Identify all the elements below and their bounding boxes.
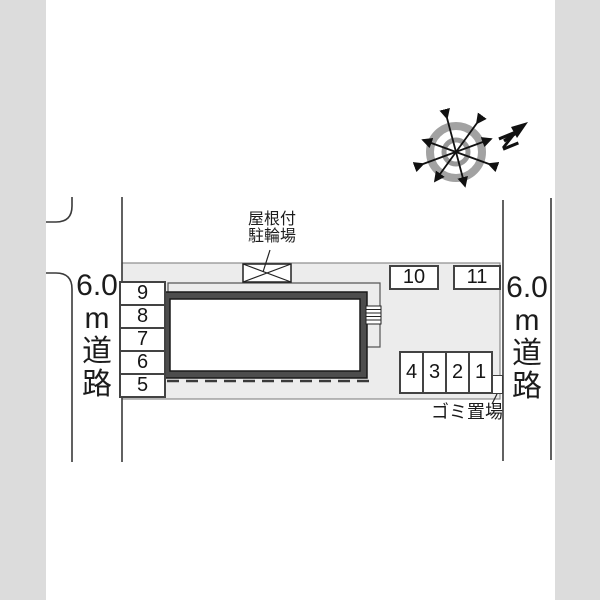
stall-number: 4 bbox=[406, 361, 417, 384]
parking-stall-5: 5 bbox=[119, 373, 166, 398]
bicycle-parking-label: 屋根付 駐輪場 bbox=[227, 211, 317, 245]
stall-number: 7 bbox=[137, 328, 148, 351]
parking-stall-10: 10 bbox=[389, 265, 439, 290]
road-label-left-line3: 道 bbox=[71, 335, 123, 368]
parking-stall-1: 1 bbox=[468, 351, 493, 394]
stall-number: 8 bbox=[137, 305, 148, 328]
parking-stall-6: 6 bbox=[119, 350, 166, 375]
road-label-left: 6.0 m 道 路 bbox=[71, 269, 123, 401]
stairs-icon bbox=[366, 306, 381, 324]
parking-stall-2: 2 bbox=[445, 351, 470, 394]
garbage-area-label: ゴミ置場 bbox=[429, 402, 505, 422]
road-label-left-line4: 路 bbox=[71, 368, 123, 401]
road-label-right-line3: 道 bbox=[501, 337, 553, 370]
road-corner-upper-left bbox=[46, 197, 72, 222]
parking-stall-3: 3 bbox=[422, 351, 447, 394]
stall-number: 3 bbox=[429, 361, 440, 384]
stall-number: 11 bbox=[467, 266, 488, 289]
parking-stall-9: 9 bbox=[119, 281, 166, 306]
compass-icon: N bbox=[423, 118, 528, 186]
parking-stall-4: 4 bbox=[399, 351, 424, 394]
stall-number: 10 bbox=[403, 266, 425, 289]
road-label-left-line1: 6.0 bbox=[71, 269, 123, 302]
stall-number: 2 bbox=[452, 361, 463, 384]
stall-number: 9 bbox=[137, 282, 148, 305]
road-corner-lower-left bbox=[46, 273, 72, 462]
bicycle-parking-label-line2: 駐輪場 bbox=[227, 228, 317, 245]
stall-number: 1 bbox=[475, 361, 486, 384]
building-interior bbox=[170, 299, 360, 371]
stall-number: 6 bbox=[137, 351, 148, 374]
parking-stall-7: 7 bbox=[119, 327, 166, 352]
bicycle-parking-icon bbox=[243, 264, 291, 282]
stall-number: 5 bbox=[137, 374, 148, 397]
garbage-area-box bbox=[492, 375, 503, 394]
road-label-right: 6.0 m 道 路 bbox=[501, 271, 553, 403]
bicycle-parking-label-line1: 屋根付 bbox=[227, 211, 317, 228]
road-label-right-line4: 路 bbox=[501, 370, 553, 403]
parking-stall-8: 8 bbox=[119, 304, 166, 329]
road-label-right-line1: 6.0 bbox=[501, 271, 553, 304]
road-label-right-line2: m bbox=[501, 304, 553, 337]
road-label-left-line2: m bbox=[71, 302, 123, 335]
parking-stall-11: 11 bbox=[453, 265, 501, 290]
building bbox=[163, 292, 367, 378]
